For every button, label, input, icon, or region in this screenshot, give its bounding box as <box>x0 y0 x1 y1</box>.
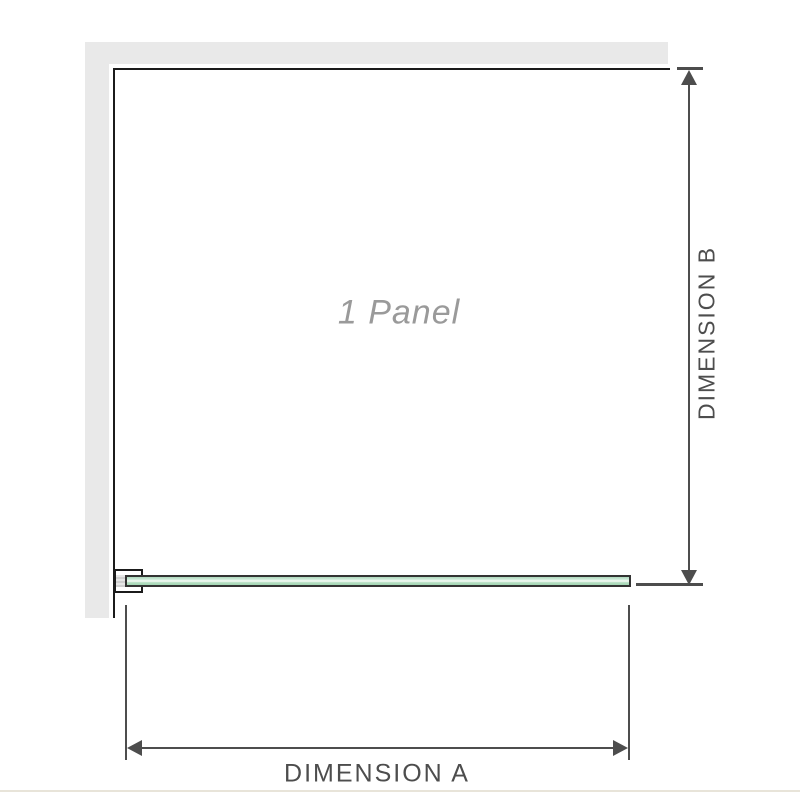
dimension-a-line <box>129 747 626 749</box>
diagram-canvas: 1 Panel DIMENSION B DIMENSION A <box>0 0 800 800</box>
dimension-arrow-down-icon <box>681 570 697 585</box>
dimension-arrow-up-icon <box>681 70 697 85</box>
dimension-b-line <box>688 72 690 584</box>
wall-top <box>85 42 668 64</box>
wall-inner-edge-left <box>113 68 115 618</box>
dimension-a-label: DIMENSION A <box>284 760 470 789</box>
dimension-a-extension-right <box>628 605 630 760</box>
wall-left <box>85 42 109 618</box>
dimension-arrow-left-icon <box>127 740 142 756</box>
wall-inner-edge-top <box>114 68 670 70</box>
dimension-a-extension-left <box>125 605 127 760</box>
dimension-arrow-right-icon <box>613 740 628 756</box>
dimension-b-label: DIMENSION B <box>694 246 721 420</box>
panel-count-label: 1 Panel <box>338 294 460 333</box>
glass-panel <box>125 575 631 587</box>
page-divider <box>0 790 800 792</box>
